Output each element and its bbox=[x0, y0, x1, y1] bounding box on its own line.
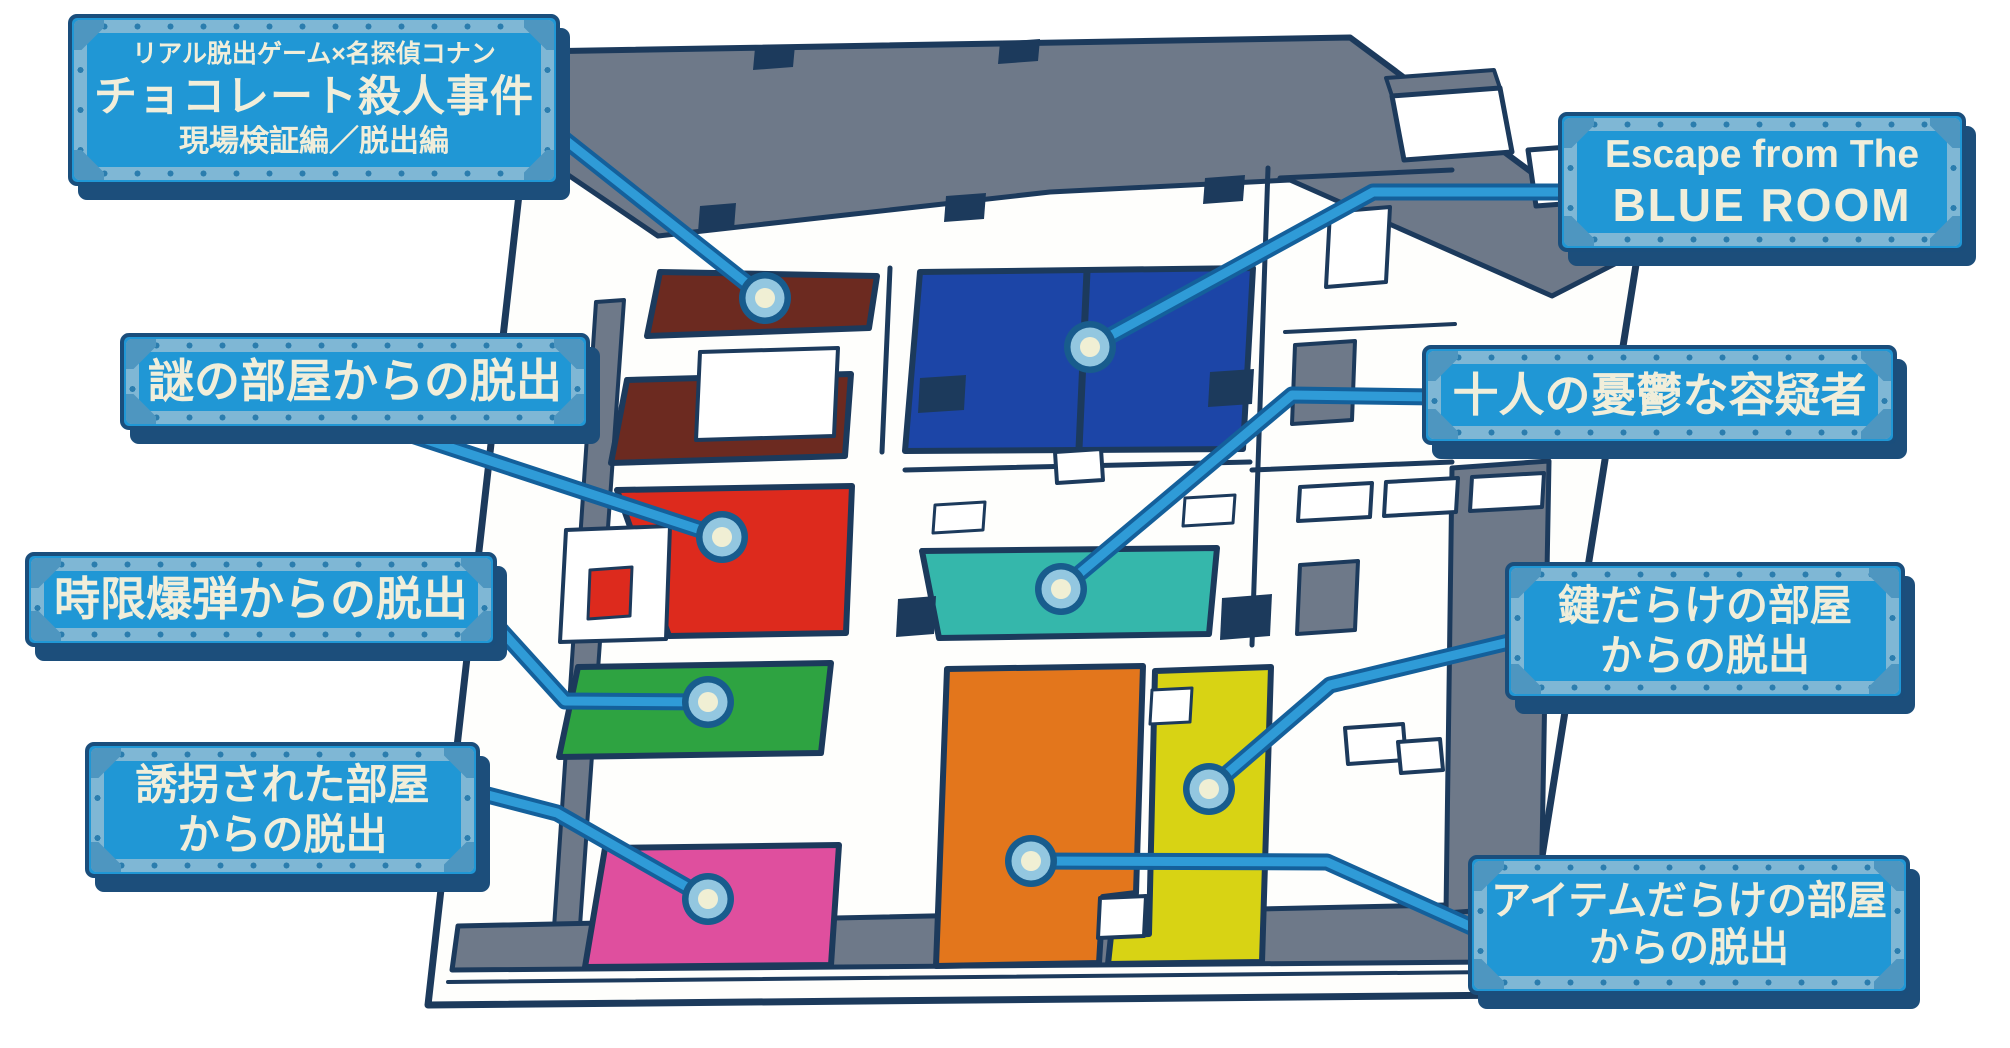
jigen-title: 時限爆弾からの脱出 bbox=[54, 572, 468, 626]
wall-pillar bbox=[1220, 594, 1272, 640]
label-plate-keys: 鍵だらけの部屋 からの脱出 bbox=[1505, 562, 1905, 700]
marker-dot-items bbox=[1005, 835, 1057, 887]
wall-pillar bbox=[896, 596, 936, 637]
floor-map-poster: リアル脱出ゲーム×名探偵コナン チョコレート殺人事件 現場検証編／脱出編 謎の部… bbox=[0, 0, 2010, 1048]
label-plate-nazo: 謎の部屋からの脱出 bbox=[120, 333, 590, 430]
conan-subtitle: リアル脱出ゲーム×名探偵コナン bbox=[132, 40, 496, 70]
step-box bbox=[1098, 896, 1146, 938]
marker-dot-conan bbox=[739, 272, 791, 324]
door-leaf bbox=[1183, 495, 1235, 526]
blue-room-title-line2: BLUE ROOM bbox=[1612, 178, 1911, 232]
label-plate-suspects: 十人の憂鬱な容疑者 bbox=[1422, 345, 1897, 445]
closet-door bbox=[1470, 473, 1544, 511]
wall-pillar bbox=[1208, 369, 1254, 407]
blue-room-title-line1: Escape from The bbox=[1605, 132, 1919, 178]
marker-dot-keys bbox=[1183, 763, 1235, 815]
closet-box bbox=[1392, 88, 1512, 160]
marker-dot-nazo bbox=[696, 511, 748, 563]
marker-dot-suspects bbox=[1035, 563, 1087, 615]
wall-pillar bbox=[1203, 175, 1245, 204]
room-floor-nazo-sliver bbox=[588, 567, 632, 619]
wall-pillar bbox=[998, 39, 1040, 64]
door-leaf bbox=[1150, 688, 1192, 724]
closet-door bbox=[1384, 478, 1458, 516]
door-leaf bbox=[933, 502, 985, 533]
keys-title-line1: 鍵だらけの部屋 bbox=[1558, 581, 1852, 631]
label-plate-jigen: 時限爆弾からの脱出 bbox=[25, 552, 497, 647]
bed-box bbox=[696, 348, 838, 440]
nazo-title: 謎の部屋からの脱出 bbox=[148, 354, 562, 408]
yukai-title-line2: からの脱出 bbox=[177, 810, 387, 860]
yukai-title-line1: 誘拐された部屋 bbox=[135, 760, 429, 810]
marker-dot-jigen bbox=[682, 676, 734, 728]
wall-pillar bbox=[753, 45, 795, 70]
label-plate-blue-room: Escape from The BLUE ROOM bbox=[1558, 112, 1966, 252]
conan-edition: 現場検証編／脱出編 bbox=[179, 124, 449, 159]
wall-pillar bbox=[698, 203, 736, 232]
conan-title: チョコレート殺人事件 bbox=[94, 72, 534, 123]
label-plate-items: アイテムだらけの部屋 からの脱出 bbox=[1468, 855, 1910, 995]
suspects-title: 十人の憂鬱な容疑者 bbox=[1453, 368, 1867, 422]
grey-floor-slot bbox=[1292, 341, 1355, 424]
closet-door bbox=[1298, 483, 1372, 521]
label-plate-conan: リアル脱出ゲーム×名探偵コナン チョコレート殺人事件 現場検証編／脱出編 bbox=[68, 14, 560, 186]
marker-dot-blue-room bbox=[1064, 321, 1116, 373]
wall-pillar bbox=[918, 375, 966, 413]
keys-title-line2: からの脱出 bbox=[1600, 631, 1810, 681]
label-plate-yukai: 誘拐された部屋 からの脱出 bbox=[85, 742, 480, 878]
items-title-line1: アイテムだらけの部屋 bbox=[1491, 878, 1887, 925]
marker-dot-yukai bbox=[682, 873, 734, 925]
wall-pillar bbox=[944, 193, 986, 222]
grey-floor-slot bbox=[1297, 561, 1358, 634]
items-title-line2: からの脱出 bbox=[1589, 925, 1789, 972]
furniture-box bbox=[1398, 739, 1443, 773]
furniture-box bbox=[1055, 449, 1103, 483]
